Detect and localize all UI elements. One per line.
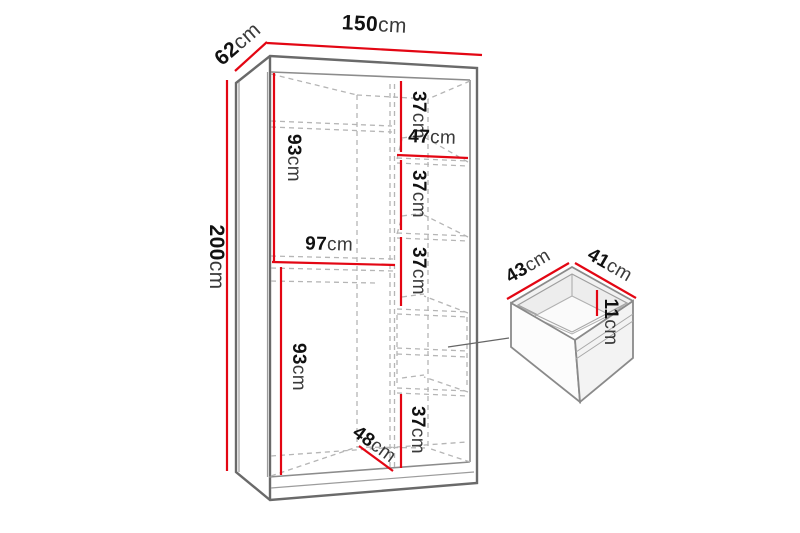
label-gap2: 37cm — [408, 170, 429, 218]
label-width: 150cm — [341, 11, 407, 38]
label-upper-left-height: 93cm — [283, 134, 304, 182]
label-lower-left-height: 93cm — [288, 343, 309, 391]
label-right-width: 47cm — [408, 126, 457, 149]
diagram-canvas: 150cm 62cm 200cm 93cm 97cm 93cm 37cm 47c… — [0, 0, 800, 533]
label-gap3: 37cm — [408, 247, 429, 295]
label-gap4: 37cm — [407, 406, 428, 454]
label-drawer-height: 11cm — [600, 298, 621, 345]
dimension-diagram: 150cm 62cm 200cm 93cm 97cm 93cm 37cm 47c… — [0, 0, 800, 533]
label-height: 200cm — [205, 224, 228, 289]
label-left-width: 97cm — [305, 233, 354, 255]
